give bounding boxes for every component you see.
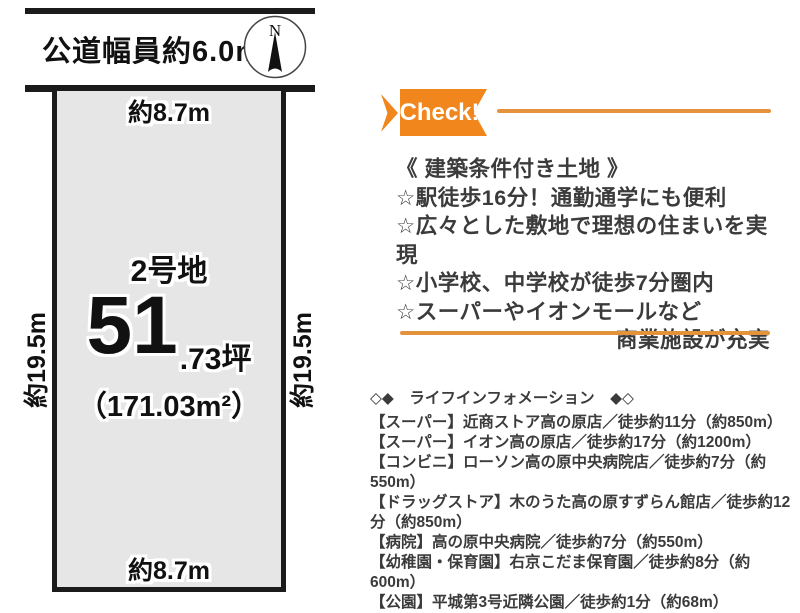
- life-info-item: 【幼稚園・保育園】右京こだま保育園／徒歩約8分（約600m）: [370, 553, 794, 593]
- dimension-bottom-width: 約8.7m: [52, 551, 286, 587]
- sales-point-item: ☆広々とした敷地で理想の住まいを実現: [396, 212, 770, 269]
- sales-point-item: ☆スーパーやイオンモールなど: [396, 298, 770, 327]
- dimension-left-depth: 約19.5m: [17, 312, 53, 408]
- life-info-item: 【病院】高の原中央病院／徒歩約7分（約550m）: [370, 533, 794, 553]
- check-ribbon: Check!: [400, 89, 487, 136]
- life-information-block: ◇◆ ライフインフォメーション ◆◇ 【スーパー】近商ストア高の原店／徒歩約11…: [370, 389, 794, 613]
- lot-area-sqm: （171.03m²）: [52, 383, 286, 425]
- area-tsubo-decimal: .73坪: [180, 334, 252, 378]
- sales-point-item: ☆小学校、中学校が徒歩7分圏内: [396, 269, 770, 298]
- sales-points-block: 《 建築条件付き土地 》 ☆駅徒歩16分！通勤通学にも便利 ☆広々とした敷地で理…: [396, 155, 770, 355]
- life-info-item: 【スーパー】イオン高の原店／徒歩約17分（約1200m）: [370, 433, 794, 453]
- life-information-title: ◇◆ ライフインフォメーション ◆◇: [370, 389, 794, 409]
- life-info-item: 【ドラッグストア】木のうた高の原すずらん館店／徒歩約12分（約850m）: [370, 493, 794, 533]
- life-info-item: 【スーパー】近商ストア高の原店／徒歩約11分（約850m）: [370, 413, 794, 433]
- check-ribbon-label: Check!: [399, 99, 487, 127]
- dimension-top-width: 約8.7m: [52, 93, 286, 129]
- lot-area-tsubo: 51 .73坪: [52, 288, 286, 364]
- dimension-right-depth: 約19.5m: [283, 312, 319, 408]
- compass-north-icon: N: [243, 15, 307, 79]
- check-ribbon-chevron-icon: [381, 94, 398, 132]
- life-info-item: 【コンビニ】ローソン高の原中央病院店／徒歩約7分（約550m）: [370, 453, 794, 493]
- road-top-line: [25, 8, 315, 14]
- sales-points-title: 《 建築条件付き土地 》: [396, 155, 770, 184]
- road-width-label: 公道幅員約6.0m: [42, 28, 262, 70]
- check-ribbon-line: [497, 109, 771, 113]
- life-info-item: 【公園】平城第3号近隣公園／徒歩約1分（約68m）: [370, 593, 794, 613]
- sales-point-item: ☆駅徒歩16分！通勤通学にも便利: [396, 184, 770, 213]
- section-divider-line: [400, 331, 770, 335]
- area-tsubo-main: 51: [87, 288, 178, 364]
